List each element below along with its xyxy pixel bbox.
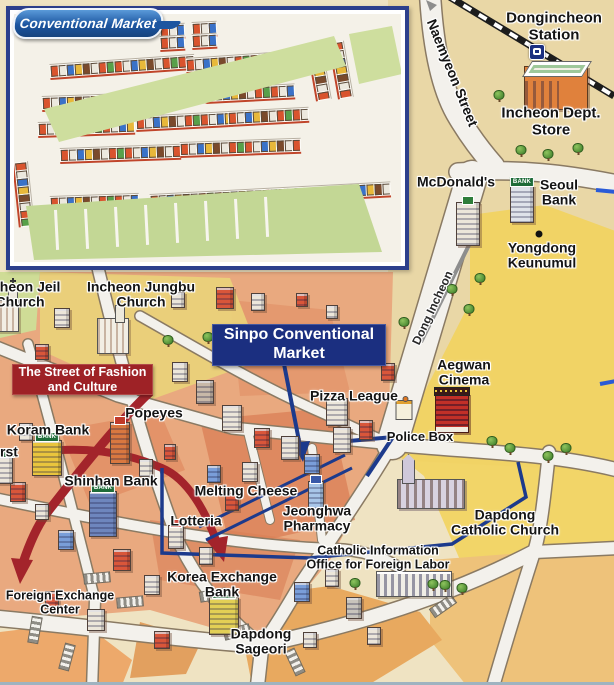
lotteria-label: Lotteria <box>170 513 221 528</box>
korea-exchange-bank-label: Korea Exchange Bank <box>167 570 277 601</box>
pizza-league-label: Pizza League <box>310 388 398 403</box>
dongincheon-station-label: Dongincheon Station <box>506 11 602 44</box>
yongdong-keunumul-label: Yongdong Keunumul <box>508 241 576 272</box>
mcdonalds-label: McDonald's <box>417 174 495 189</box>
incheon-dept-store-label: Incheon Dept. Store <box>501 106 600 139</box>
incheon-jeil-church-label: Incheon Jeil Church <box>0 280 60 311</box>
dapdong-sageori-label: Dapdong Sageori <box>231 627 292 658</box>
police-box-label: Police Box <box>387 430 453 444</box>
foreign-exchange-center-label: Foreign Exchange Center <box>6 589 114 617</box>
dapdong-catholic-church-label: Dapdong Catholic Church <box>451 508 559 539</box>
logo-text: Conventional Market <box>19 16 157 31</box>
popeyes-label: Popeyes <box>125 405 183 420</box>
koram-bank-label: Koram Bank <box>7 422 89 437</box>
shinhan-bank-label: Shinhan Bank <box>64 473 157 488</box>
seoul-bank-label: Seoul Bank <box>540 178 578 209</box>
incheon-jungbu-church-label: Incheon Jungbu Church <box>87 280 195 311</box>
dong-incheon-street-label: Dong Incheon <box>410 269 456 347</box>
catholic-office-label: Catholic Information Office for Foreign … <box>306 544 449 572</box>
melting-cheese-label: Melting Cheese <box>195 483 298 498</box>
aegwan-cinema-label: Aegwan Cinema <box>437 358 491 389</box>
first-bank-label: rst <box>0 444 18 459</box>
sinpo-market-banner: Sinpo Conventional Market <box>212 324 386 366</box>
conventional-market-logo: Conventional Market <box>11 8 164 39</box>
fashion-street-banner: The Street of Fashion and Culture <box>12 364 153 395</box>
jeonghwa-pharmacy-label: Jeonghwa Pharmacy <box>283 504 351 535</box>
naemyeon-street-label: Naemyeon Street <box>423 17 480 129</box>
sinpo-area-map: BANKBANKBANKBANKBANK Dongincheon Station… <box>0 0 614 685</box>
